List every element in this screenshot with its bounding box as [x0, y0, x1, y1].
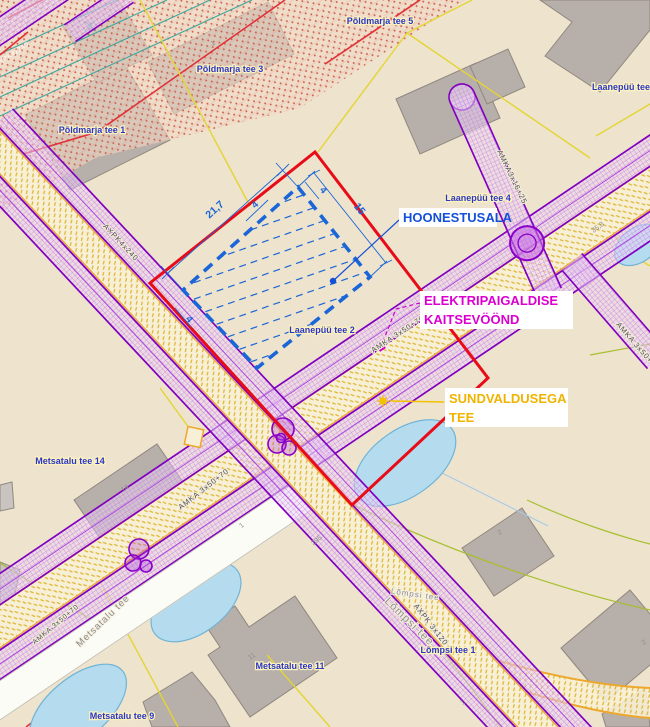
- address-label: Põldmarja tee 5: [347, 16, 414, 26]
- detail-plan-map: 21,7 15 4 4 4 Metsatalu tee Lõmpsi tee L…: [0, 0, 650, 727]
- address-label: Laanepüü tee: [592, 82, 650, 92]
- map-canvas: 21,7 15 4 4 4 Metsatalu tee Lõmpsi tee L…: [0, 0, 650, 727]
- building: [0, 482, 14, 511]
- sundvaldus-label-line2: TEE: [449, 410, 475, 425]
- address-label: Metsatalu tee 11: [255, 661, 324, 671]
- address-label: Laanepüü tee 2: [289, 325, 355, 335]
- callout-sundvaldus: SUNDVALDUSEGA TEE: [445, 388, 568, 427]
- address-label: Põldmarja tee 1: [59, 125, 126, 135]
- address-label: Lõmpsi tee 1: [420, 645, 475, 655]
- hoonestusala-label: HOONESTUSALA: [403, 210, 513, 225]
- kaitsevoond-label-line1: ELEKTRIPAIGALDISE: [424, 293, 558, 308]
- sundvaldus-label-line1: SUNDVALDUSEGA: [449, 391, 567, 406]
- address-label: Põldmarja tee 3: [197, 64, 264, 74]
- road-structure-box: [184, 427, 203, 448]
- address-label: Laanepüü tee 4: [445, 193, 511, 203]
- address-label: Metsatalu tee 9: [90, 711, 155, 721]
- callout-kaitsevoond: ELEKTRIPAIGALDISE KAITSEVÖÖND: [420, 291, 573, 329]
- address-label: Metsatalu tee 14: [35, 456, 105, 466]
- kaitsevoond-label-line2: KAITSEVÖÖND: [424, 312, 519, 327]
- hoonestusala-marker: [330, 278, 336, 284]
- callout-hoonestusala: HOONESTUSALA: [399, 208, 513, 227]
